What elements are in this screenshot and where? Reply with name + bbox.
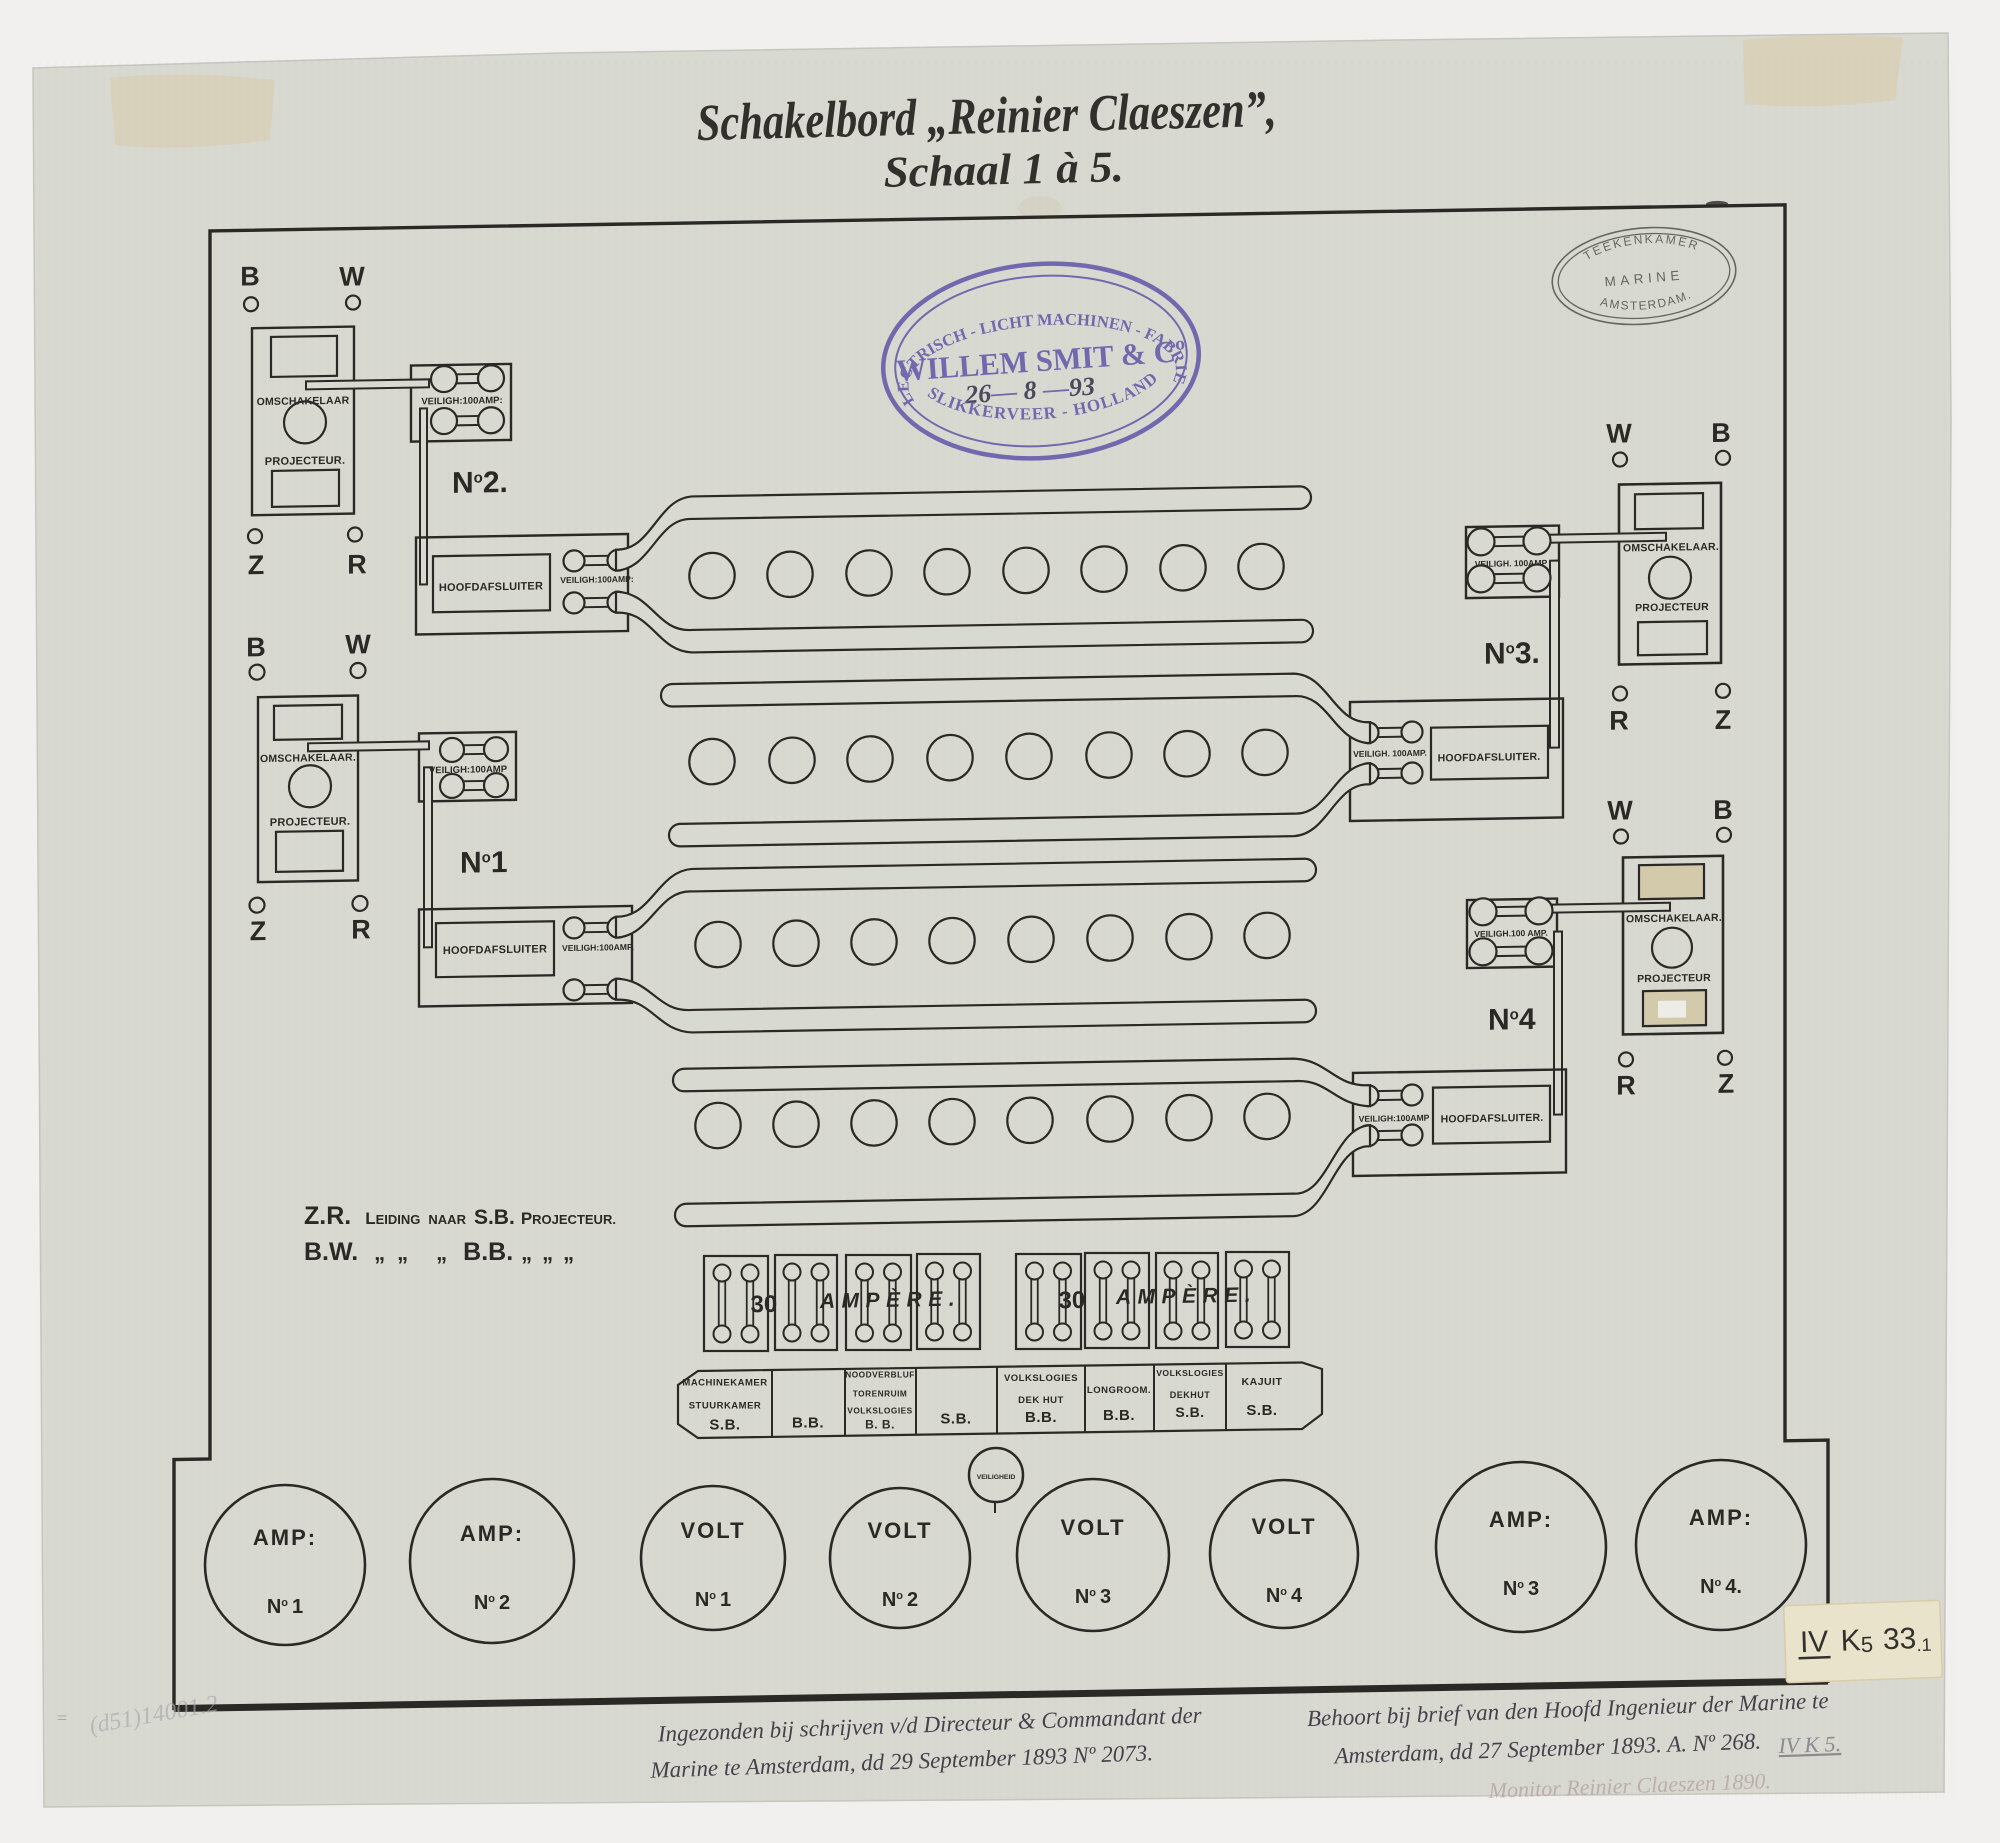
svg-text:VEILIGHEID: VEILIGHEID [977, 1474, 1016, 1481]
svg-text:KAJUIT: KAJUIT [1242, 1376, 1283, 1388]
svg-text:VEILIGH:100AMP:: VEILIGH:100AMP: [421, 395, 502, 407]
svg-text:VEILIGH:100AMP.: VEILIGH:100AMP. [562, 942, 634, 953]
svg-text:VEILIGH:100AMP: VEILIGH:100AMP [1359, 1113, 1430, 1124]
svg-text:VOLKSLOGIES: VOLKSLOGIES [1004, 1373, 1078, 1384]
svg-text:R: R [1616, 1070, 1635, 1100]
svg-text:S.B.: S.B. [709, 1417, 740, 1434]
svg-text:DEKHUT: DEKHUT [1170, 1390, 1211, 1400]
svg-text:VOLKSLOGIES: VOLKSLOGIES [847, 1405, 912, 1415]
svg-text:B. B.: B. B. [865, 1417, 895, 1431]
svg-text:VEILIGH. 100AMP.: VEILIGH. 100AMP. [1353, 748, 1427, 759]
svg-text:30: 30 [750, 1291, 777, 1318]
svg-text:HOOFDAFSLUITER: HOOFDAFSLUITER [443, 943, 547, 957]
svg-text:OMSCHAKELAAR.: OMSCHAKELAAR. [1626, 912, 1722, 926]
svg-text:PROJECTEUR.: PROJECTEUR. [270, 816, 350, 829]
svg-text:AMPÈRE.: AMPÈRE. [1115, 1284, 1258, 1309]
svg-text:AMP:: AMP: [1489, 1507, 1553, 1532]
svg-text:MACHINEKAMER: MACHINEKAMER [682, 1378, 767, 1389]
svg-text:TORENRUIM: TORENRUIM [853, 1388, 908, 1398]
svg-text:PROJECTEUR.: PROJECTEUR. [265, 455, 345, 468]
svg-text:STUURKAMER: STUURKAMER [689, 1401, 762, 1412]
svg-text:IV K 5.: IV K 5. [1777, 1731, 1841, 1758]
svg-text:VOLT: VOLT [1060, 1515, 1125, 1540]
svg-text:Z: Z [1715, 705, 1731, 735]
svg-text:NOODVERBLUF: NOODVERBLUF [845, 1369, 915, 1379]
svg-text:B: B [240, 261, 259, 291]
svg-text:Z: Z [248, 550, 264, 580]
svg-text:HOOFDAFSLUITER.: HOOFDAFSLUITER. [1438, 751, 1541, 765]
svg-text:Schaal 1 à 5.: Schaal 1 à 5. [883, 142, 1124, 197]
svg-text:B: B [1713, 795, 1732, 825]
svg-text:S.B.: S.B. [1246, 1402, 1277, 1419]
svg-text:R: R [1609, 705, 1628, 735]
svg-text:VEILIGH:100AMP:: VEILIGH:100AMP: [560, 574, 634, 585]
svg-text:Z: Z [250, 916, 266, 946]
svg-text:=: = [57, 1708, 67, 1728]
svg-text:PROJECTEUR: PROJECTEUR [1637, 972, 1711, 985]
svg-text:W: W [1607, 795, 1633, 825]
svg-text:VOLT: VOLT [867, 1518, 932, 1543]
svg-text:AMP:: AMP: [460, 1521, 524, 1546]
svg-text:PROJECTEUR: PROJECTEUR [1635, 601, 1709, 614]
svg-text:AMP:: AMP: [1689, 1505, 1753, 1530]
svg-text:R: R [347, 549, 366, 579]
svg-text:S.B.: S.B. [1175, 1404, 1204, 1420]
svg-text:R: R [351, 914, 370, 944]
svg-text:OMSCHAKELAAR.: OMSCHAKELAAR. [1623, 541, 1719, 555]
svg-text:LONGROOM.: LONGROOM. [1087, 1385, 1151, 1396]
svg-text:W: W [1606, 418, 1632, 448]
svg-text:HOOFDAFSLUITER: HOOFDAFSLUITER [439, 580, 543, 594]
svg-text:B: B [1711, 418, 1730, 448]
svg-text:VOLT: VOLT [680, 1518, 745, 1543]
svg-text:HOOFDAFSLUITER.: HOOFDAFSLUITER. [1441, 1112, 1544, 1126]
svg-text:B.B.: B.B. [792, 1414, 824, 1431]
svg-text:W: W [339, 261, 365, 291]
svg-text:S.B.: S.B. [940, 1410, 971, 1427]
svg-text:B.B.: B.B. [1103, 1407, 1135, 1424]
svg-text:AMP:: AMP: [253, 1525, 317, 1550]
svg-text:B.B.: B.B. [1025, 1409, 1057, 1426]
svg-text:AMPÈRE.: AMPÈRE. [819, 1288, 962, 1313]
svg-text:VOLKSLOGIES: VOLKSLOGIES [1156, 1368, 1224, 1378]
svg-text:DEK HUT: DEK HUT [1018, 1395, 1064, 1406]
svg-text:OMSCHAKELAAR.: OMSCHAKELAAR. [260, 752, 356, 766]
svg-text:B: B [246, 632, 265, 662]
svg-text:VOLT: VOLT [1251, 1514, 1316, 1539]
svg-text:W: W [345, 629, 371, 659]
svg-text:Z: Z [1718, 1069, 1734, 1099]
svg-text:30: 30 [1058, 1287, 1085, 1314]
